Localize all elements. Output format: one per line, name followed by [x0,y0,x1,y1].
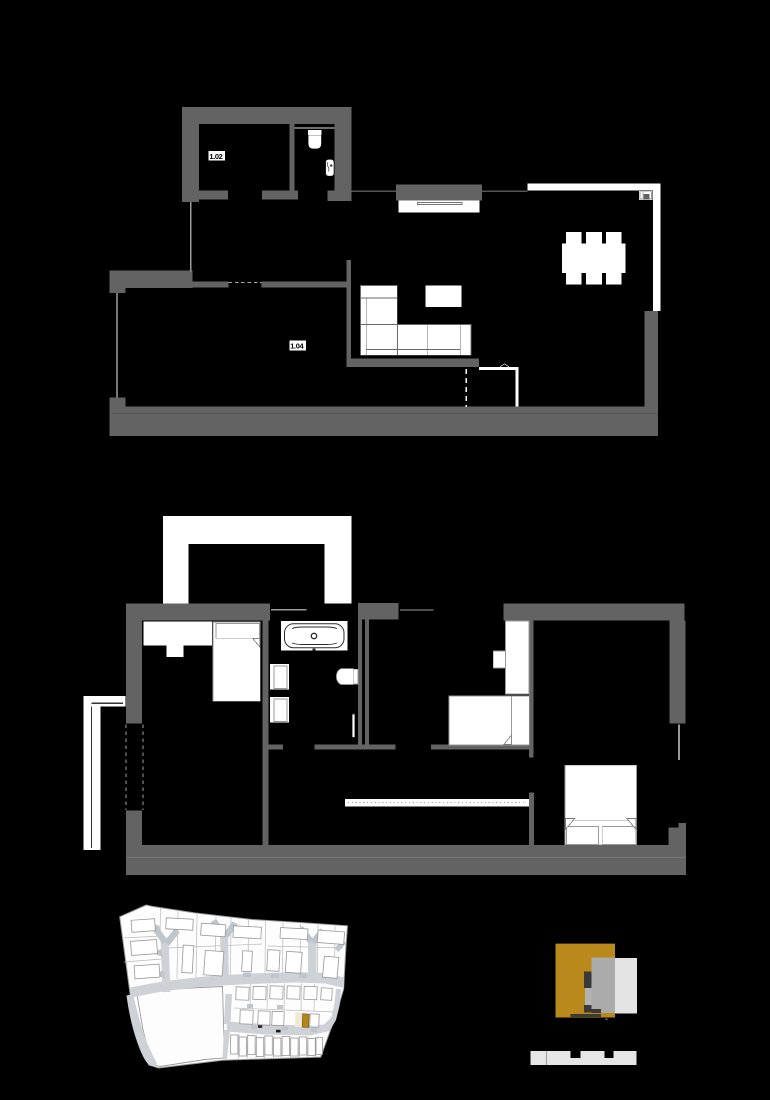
svg-text:1.04: 1.04 [290,342,304,351]
svg-text:1.02: 1.02 [209,152,222,161]
